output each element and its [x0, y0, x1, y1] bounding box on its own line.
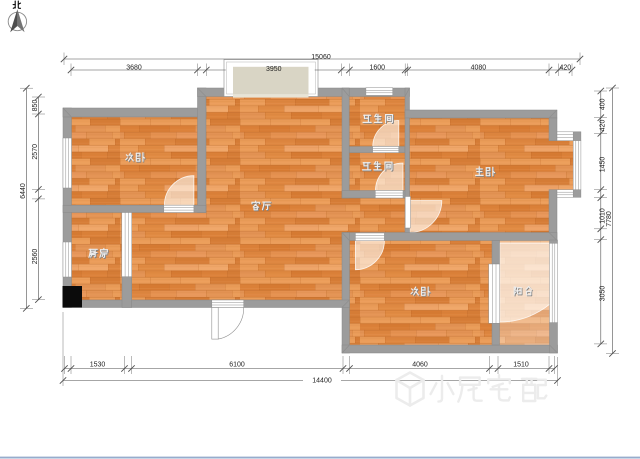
svg-text:3050: 3050	[600, 286, 607, 302]
svg-text:6100: 6100	[229, 362, 245, 369]
svg-text:1600: 1600	[370, 65, 386, 72]
svg-text:15060: 15060	[311, 54, 331, 61]
svg-text:2570: 2570	[32, 144, 39, 160]
svg-text:4080: 4080	[471, 65, 487, 72]
svg-text:3950: 3950	[266, 66, 282, 73]
svg-text:7780: 7780	[606, 211, 613, 227]
svg-text:400: 400	[600, 98, 607, 110]
svg-text:1510: 1510	[513, 362, 529, 369]
svg-text:4060: 4060	[412, 362, 428, 369]
svg-text:1530: 1530	[90, 362, 106, 369]
svg-text:420: 420	[559, 65, 571, 72]
svg-text:420: 420	[600, 120, 607, 132]
svg-text:6440: 6440	[20, 183, 27, 199]
svg-text:3680: 3680	[126, 65, 142, 72]
svg-text:850: 850	[32, 100, 39, 112]
svg-text:2560: 2560	[32, 249, 39, 265]
svg-text:14400: 14400	[312, 377, 332, 384]
svg-text:1450: 1450	[600, 157, 607, 173]
